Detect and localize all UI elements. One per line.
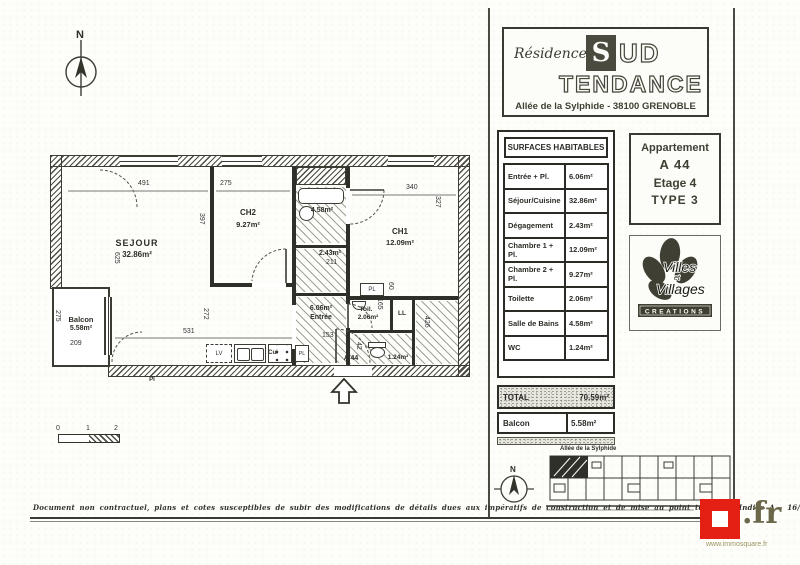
scanned-floorplan-page: N LV PL	[0, 0, 800, 565]
row-value: 2.06m²	[565, 287, 608, 312]
apartment-floor: Etage 4	[631, 176, 719, 190]
scale-1: 1	[86, 425, 90, 432]
residence-header-box: Résidence S UD TENDANCE Allée de la Sylp…	[502, 27, 709, 117]
table-row: Séjour/Cuisine32.86m²	[504, 189, 608, 214]
row-value: 6.06m²	[565, 164, 608, 189]
villes-et-villages-logo: Villes et Villages CREATIONS	[630, 236, 719, 329]
residence-address: Allée de la Sylphide - 38100 GRENOBLE	[504, 101, 707, 112]
row-label: Chambre 2 + Pl.	[504, 262, 565, 287]
builder-word3: Villages	[656, 281, 705, 297]
builder-word1: Villes	[663, 259, 696, 275]
room-area-toilette: 2.06m²	[358, 314, 379, 321]
row-label: Toilette	[504, 287, 565, 312]
immosquare-logo-inner-square	[712, 511, 728, 527]
surfaces-title: SURFACES HABITABLES	[504, 137, 608, 158]
apartment-box: Appartement A 44 Etage 4 TYPE 3	[629, 133, 721, 225]
dim-sejour-height: 625	[113, 252, 120, 264]
total-label: TOTAL	[503, 393, 529, 402]
room-area-balcon: 5.58m²	[70, 325, 92, 332]
immosquare-url: www.immosquare.fr	[706, 541, 767, 548]
residence-prefix: Résidence	[514, 46, 587, 62]
table-row: Salle de Bains4.58m²	[504, 311, 608, 336]
laundry-label: LL	[398, 310, 406, 317]
room-area-ch1: 12.09m²	[386, 238, 414, 247]
footer-rule-thick	[30, 517, 712, 519]
dim-sejour-width2: 531	[183, 328, 195, 335]
dim-wc-width: 42	[355, 342, 362, 350]
pl-label-south: Pl	[149, 377, 155, 383]
dim-sejour-height2: 272	[202, 308, 209, 320]
dim-ch1-width: 340	[406, 184, 418, 191]
balcon-label: Balcon	[497, 412, 568, 434]
surfaces-table: Entrée + Pl.6.06m² Séjour/Cuisine32.86m²…	[503, 163, 609, 361]
immosquare-logo-icon	[700, 499, 740, 539]
dim-wc-height: 426	[423, 316, 430, 328]
balcon-row: Balcon 5.58m²	[497, 412, 615, 434]
speckle-strip	[497, 437, 615, 445]
room-area-entree: 6.06m²	[310, 305, 332, 312]
brand-letter-s: S	[586, 35, 616, 71]
row-value: 12.09m²	[565, 238, 608, 263]
scale-0: 0	[56, 425, 60, 432]
cooktop-label: Cui	[268, 350, 278, 356]
dim-ch1-height: 327	[434, 196, 441, 208]
builder-banner: CREATIONS	[645, 309, 705, 316]
entrance-door-label: A 44	[344, 355, 359, 362]
room-area-ch2: 9.27m²	[236, 220, 260, 229]
entrance-arrow-icon	[332, 379, 356, 403]
dim-balcon-width: 209	[70, 340, 82, 347]
room-label-balcon: Balcon	[68, 315, 93, 324]
siteplan-compass-n: N	[510, 465, 516, 474]
room-label-ch2: CH2	[240, 208, 256, 217]
dim-balcon-height: 275	[54, 310, 61, 322]
dim-entree-width: 153	[322, 332, 334, 339]
apartment-number: A 44	[631, 157, 719, 172]
room-label-entree: Entrée	[310, 314, 332, 321]
room-label-toilette: Toil.	[360, 306, 373, 313]
footer-line: Document non contractuel, plans et cotes…	[33, 503, 701, 512]
row-label: Séjour/Cuisine	[504, 189, 565, 214]
dim-ch2-width: 275	[220, 180, 232, 187]
brand-word-ud: UD	[619, 38, 661, 69]
table-row: Dégagement2.43m²	[504, 213, 608, 238]
dim-sejour-width: 491	[138, 180, 150, 187]
row-label: Entrée + Pl.	[504, 164, 565, 189]
room-label-ch1: CH1	[392, 227, 408, 236]
row-value: 1.24m²	[565, 336, 608, 361]
table-row: Entrée + Pl.6.06m²	[504, 164, 608, 189]
balcon-value: 5.58m²	[568, 412, 615, 434]
surfaces-box: SURFACES HABITABLES Entrée + Pl.6.06m² S…	[497, 130, 615, 378]
room-area-degagement: 2.43m²	[319, 250, 341, 257]
room-label-sejour: SEJOUR	[115, 238, 158, 248]
table-row: Chambre 1 + Pl.12.09m²	[504, 238, 608, 263]
dim-ch2-height: 397	[198, 213, 205, 225]
row-value: 9.27m²	[565, 262, 608, 287]
scale-2: 2	[114, 425, 118, 432]
row-value: 4.58m²	[565, 311, 608, 336]
builder-logo-box: Villes et Villages CREATIONS	[629, 235, 721, 331]
immosquare-tld: .fr	[742, 496, 781, 531]
row-label: Chambre 1 + Pl.	[504, 238, 565, 263]
room-area-wc: 1.24m²	[388, 354, 409, 361]
table-row: Toilette2.06m²	[504, 287, 608, 312]
footer-rule-thin	[30, 521, 712, 522]
footer-disclaimer: Document non contractuel, plans et cotes…	[33, 503, 739, 512]
scale-bar	[58, 434, 120, 443]
dim-toilette-width: 165	[376, 298, 383, 310]
row-label: Dégagement	[504, 213, 565, 238]
table-row: WC1.24m²	[504, 336, 608, 361]
apartment-type: TYPE 3	[631, 193, 719, 207]
total-row: TOTAL 70.59m²	[497, 385, 615, 409]
row-value: 2.43m²	[565, 213, 608, 238]
dim-degagement-width: 211	[326, 259, 337, 266]
table-row: Chambre 2 + Pl.9.27m²	[504, 262, 608, 287]
brand-word-tendance: TENDANCE	[559, 71, 703, 98]
apartment-line1: Appartement	[631, 142, 719, 154]
total-value: 70.59m²	[579, 393, 609, 402]
room-area-sejour: 32.86m²	[122, 250, 152, 259]
scale-bar-fill	[89, 435, 119, 442]
row-label: Salle de Bains	[504, 311, 565, 336]
row-label: WC	[504, 336, 565, 361]
room-area-sdb: 4.58m²	[311, 207, 333, 214]
row-value: 32.86m²	[565, 189, 608, 214]
dim-placard-depth: 60	[387, 282, 394, 290]
